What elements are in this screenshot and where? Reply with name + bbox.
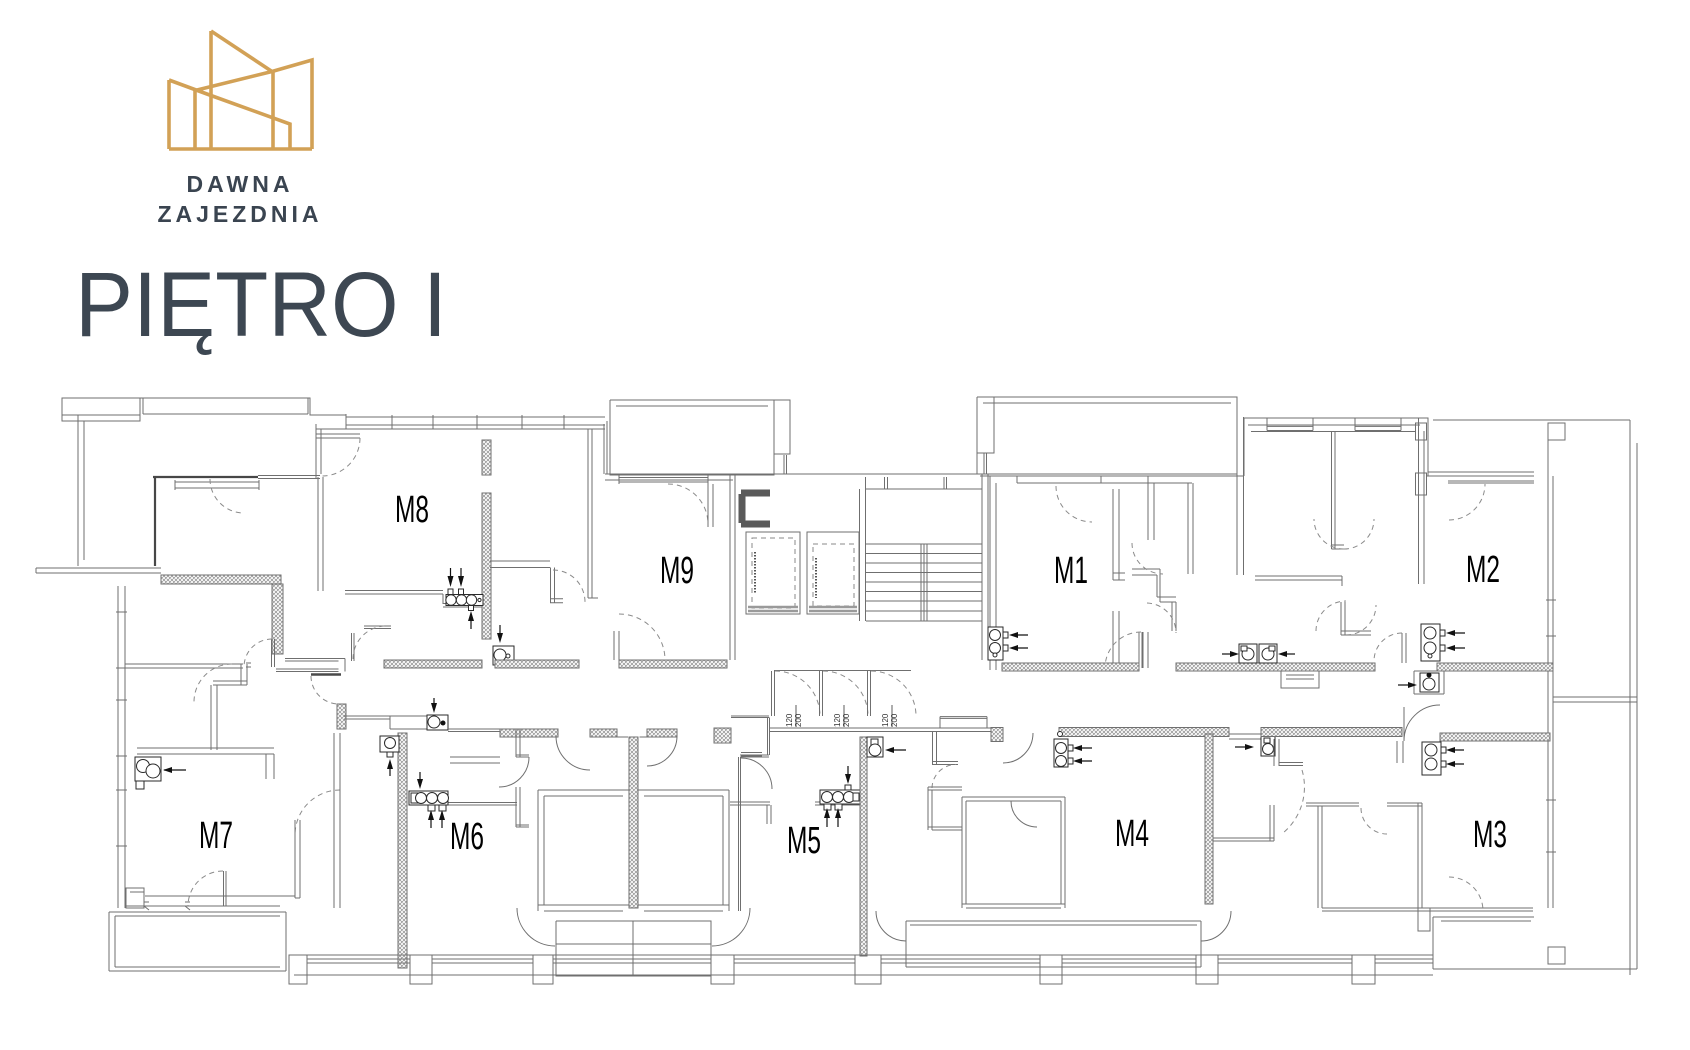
svg-text:PIĘTRO I: PIĘTRO I [75, 254, 447, 356]
svg-text:M5: M5 [787, 820, 821, 862]
svg-text:120: 120 [785, 713, 794, 727]
svg-text:M7: M7 [199, 815, 233, 857]
svg-text:M8: M8 [395, 489, 429, 531]
svg-text:M3: M3 [1473, 814, 1507, 856]
svg-text:M9: M9 [660, 550, 694, 592]
svg-text:DAWNA: DAWNA [187, 171, 294, 197]
svg-text:200: 200 [794, 713, 803, 727]
svg-text:M2: M2 [1466, 549, 1500, 591]
svg-text:M4: M4 [1115, 813, 1149, 855]
svg-text:200: 200 [890, 713, 899, 727]
svg-text:200: 200 [842, 713, 851, 727]
svg-text:ZAJEZDNIA: ZAJEZDNIA [157, 201, 322, 227]
svg-text:120: 120 [833, 713, 842, 727]
svg-text:M6: M6 [450, 816, 484, 858]
svg-text:M1: M1 [1054, 550, 1088, 592]
svg-text:120: 120 [881, 713, 890, 727]
